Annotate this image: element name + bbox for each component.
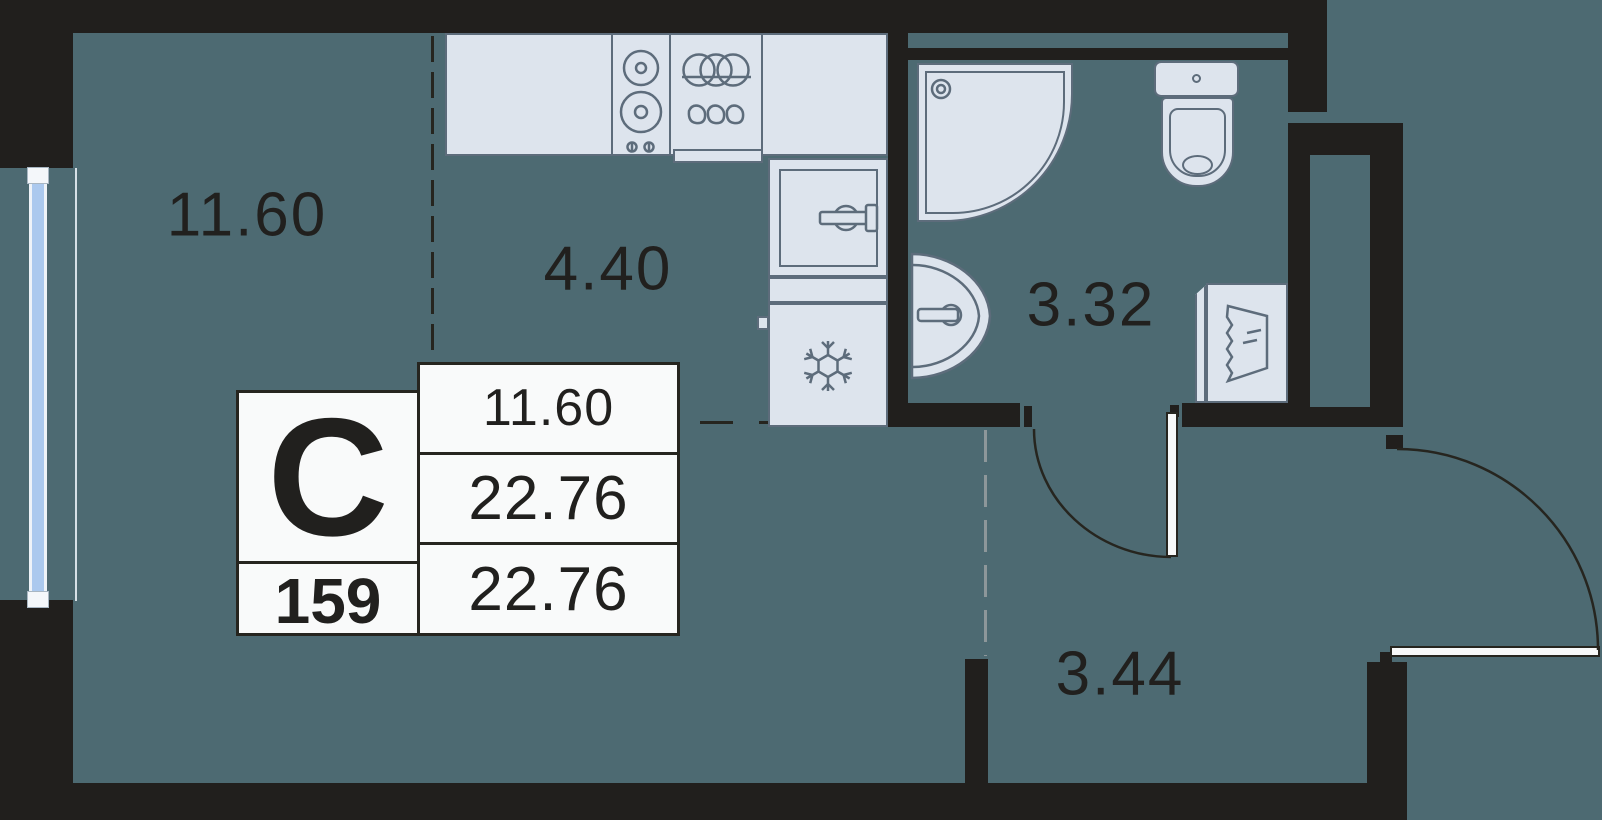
info-table-room-area: 11.60 [420, 365, 677, 452]
fridge-hinge [757, 316, 769, 330]
toilet-drain [1182, 155, 1213, 175]
shower-tray [917, 63, 1073, 222]
room-label-bathroom: 3.32 [1027, 270, 1156, 341]
shower-tray-inner [925, 71, 1065, 214]
counter-divider-3 [761, 34, 763, 155]
wall-kitchen-bathroom-divider [888, 33, 908, 427]
oven-door [779, 169, 878, 267]
window-reveal-line [75, 168, 77, 601]
counter-mid-piece [768, 277, 888, 303]
counter-divider-2 [669, 34, 671, 155]
counter-divider-1 [611, 34, 613, 155]
fridge [768, 303, 888, 427]
window-glazing [32, 170, 44, 606]
floor-plan: 11.60 4.40 3.32 3.44 11.60 22.76 22.76 С… [0, 0, 1602, 820]
room-label-living: 11.60 [167, 180, 328, 251]
kitchen-counter [445, 33, 888, 156]
info-table-unit-type: С [239, 393, 417, 561]
info-table-areas-column: 11.60 22.76 22.76 [417, 362, 680, 636]
info-table-type-column: С 159 [236, 390, 420, 636]
toilet-flush-button [1192, 74, 1201, 83]
zone-edge-segment-1 [700, 421, 733, 424]
vent-shaft-cavity [1310, 155, 1370, 407]
wall-left-lower-pier [0, 600, 73, 820]
bathroom-door-jamb-left [1024, 406, 1032, 427]
washing-machine-front [1195, 285, 1206, 403]
zone-edge-segment-2 [759, 421, 768, 424]
wall-bottom [73, 783, 1407, 820]
wall-left-upper-pier [0, 0, 73, 168]
info-table-total-area: 22.76 [420, 542, 677, 633]
entrance-door-leaf [1390, 646, 1600, 657]
entrance-door-jamb-top [1386, 435, 1403, 449]
window-sill-cap-bottom [27, 591, 49, 608]
zone-divider-hall-living [984, 430, 987, 656]
room-label-kitchen: 4.40 [544, 234, 673, 305]
window-sill-cap-top [27, 167, 49, 184]
room-label-hallway: 3.44 [1056, 639, 1185, 710]
wall-bathroom-right [1288, 33, 1327, 112]
door-swing-arc-entrance [1397, 449, 1598, 650]
washing-machine [1206, 283, 1288, 403]
wall-right-lower [1367, 662, 1407, 820]
wall-hall-stub [965, 659, 988, 783]
sink-cabinet-lip [673, 149, 763, 163]
info-table-area-middle: 22.76 [420, 452, 677, 543]
info-table-unit-number: 159 [239, 561, 417, 638]
door-swing-arc-bathroom [1034, 429, 1171, 557]
wall-top [0, 0, 1327, 33]
bathroom-sink [912, 254, 990, 378]
wall-bathroom-bottom-left [888, 403, 1020, 427]
bathroom-door-leaf [1166, 412, 1178, 557]
wall-bathroom-bottom-right [1182, 403, 1293, 427]
wall-bathroom-top [908, 48, 1293, 60]
zone-divider-living-kitchen [431, 36, 434, 360]
